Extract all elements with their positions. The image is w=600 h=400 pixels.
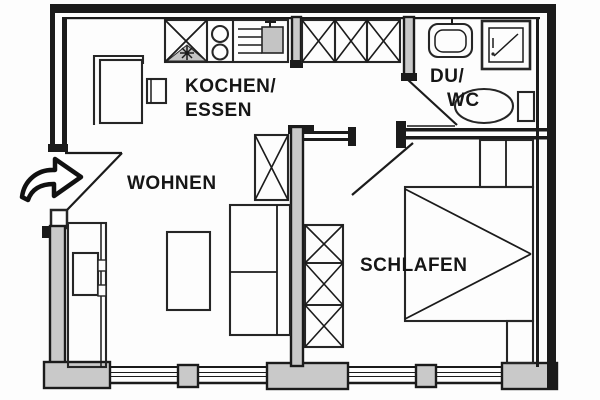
label-living: WOHNEN [127, 173, 217, 194]
bench [94, 56, 143, 125]
wall-living-bedroom [291, 127, 303, 366]
shower-icon [482, 21, 530, 69]
wall-shelf-icon [255, 135, 288, 200]
label-bath-line2: WC [447, 90, 480, 111]
kitchen-counter [165, 20, 288, 62]
dining-set [94, 56, 166, 125]
headboard-shelf [480, 140, 533, 187]
washbasin-icon [429, 17, 472, 57]
window-band-living [110, 365, 267, 387]
label-bedroom: SCHLAFEN [360, 255, 467, 276]
window-band-bedroom [348, 365, 502, 387]
floor-plan: KOCHEN/ ESSEN WOHNEN DU/ WC SCHLAFEN [0, 0, 600, 400]
living-furniture [68, 135, 290, 367]
wall-bath-bedroom [404, 128, 549, 132]
window-mullion [416, 365, 436, 387]
cooktop-icon [212, 26, 228, 60]
hall-closet-icon [302, 20, 400, 62]
dining-table [100, 60, 142, 123]
chair [147, 79, 166, 103]
sink-unit-icon [165, 20, 207, 62]
label-kitchen-line2: ESSEN [185, 100, 252, 121]
bedroom-furniture [305, 140, 533, 363]
window-mullion [178, 365, 198, 387]
bed-icon [405, 187, 533, 321]
worktop-sink-icon [238, 20, 283, 53]
couch [230, 205, 290, 335]
coffee-table [167, 232, 210, 310]
entrance-arrow-icon [22, 159, 81, 200]
label-bath-line1: DU/ [430, 66, 464, 87]
nightstand [507, 321, 533, 363]
wall-hall-bath [404, 17, 414, 76]
label-kitchen-line1: KOCHEN/ [185, 76, 276, 97]
wall-kitchen-hall [292, 17, 301, 62]
floor-plan-page: KOCHEN/ ESSEN WOHNEN DU/ WC SCHLAFEN [0, 0, 600, 400]
bedroom-wardrobe-icon [305, 225, 343, 347]
bedroom-door [352, 143, 413, 195]
door-jamb [48, 144, 68, 152]
